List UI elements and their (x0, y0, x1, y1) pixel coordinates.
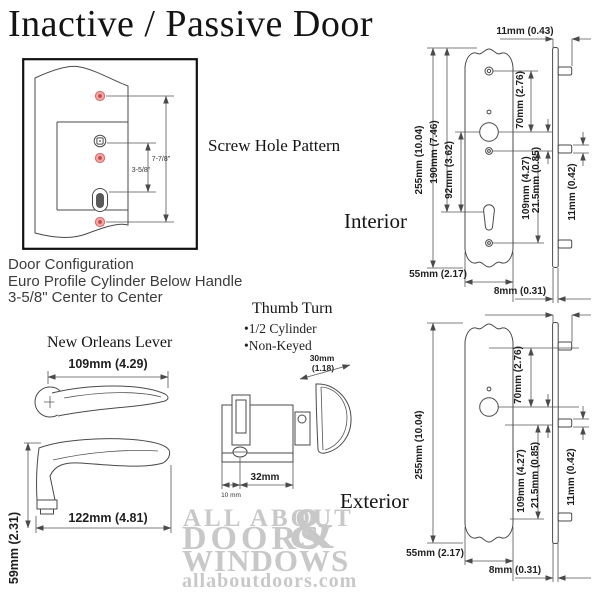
spindle-hole (94, 135, 106, 147)
exterior-dim-plate-width: 55mm (2.17) (406, 548, 464, 559)
interior-dim-total-height: 255mm (10.04) (414, 126, 425, 195)
interior-dim-screw-span: 190mm (7.46) (429, 120, 440, 183)
exterior-diagram: 255mm (10.04) 70mm (2.76) 109mm (4.27) 2… (405, 303, 600, 595)
exterior-side-profile (553, 323, 572, 544)
door-configuration-block: Door Configuration Euro Profile Cylinder… (8, 257, 242, 307)
interior-side-profile (553, 48, 572, 268)
watermark-line4: allaboutdoors.com (182, 571, 357, 591)
exterior-dim-total-height: 255mm (10.04) (414, 411, 425, 480)
exterior-dim-handle-offset: 21.5mm (0.85) (530, 442, 541, 508)
lever-dim-length: 122mm (4.81) (68, 511, 147, 525)
screw-hole-pattern-label: Screw Hole Pattern (208, 136, 340, 156)
lever-dim-width: 109mm (4.29) (68, 357, 147, 371)
exterior-dim-top-to-handle: 70mm (2.76) (513, 346, 524, 404)
interior-label: Interior (344, 209, 407, 234)
exterior-dim-side-width: 8mm (0.31) (489, 565, 541, 576)
door-edge-drawing (35, 66, 128, 237)
thumb-turn-title: Thumb Turn (252, 300, 332, 318)
pattern-dim-outer: 7-7/8" (152, 156, 171, 163)
cylinder-body (222, 395, 293, 462)
door-config-line2: Euro Profile Cylinder Below Handle (8, 274, 242, 291)
interior-dim-top-to-handle: 70mm (2.76) (515, 71, 526, 129)
thumb-turn-diagram: 30mm (1.18) 32mm 10 mm (210, 350, 360, 500)
door-config-line3: 3-5/8" Center to Center (8, 290, 242, 307)
exterior-left-dims (427, 323, 463, 543)
interior-dim-side-width: 8mm (0.31) (494, 286, 546, 297)
lever-diagram: 109mm (4.29) 122mm (4.81) 59mm (2.31) (8, 352, 208, 600)
interior-diagram: 11mm (0.43) (405, 20, 600, 310)
thumb-turn-bullet1: •1/2 Cylinder (244, 320, 317, 337)
page-title: Inactive / Passive Door (8, 2, 373, 46)
interior-dim-tab: 11mm (0.42) (567, 163, 578, 220)
interior-dim-handle-offset: 21.5mm (0.85) (531, 147, 542, 213)
interior-plate (465, 49, 513, 267)
thumb-dim-wing-line2: (1.18) (312, 363, 334, 373)
lever-title: New Orleans Lever (47, 334, 172, 352)
interior-dim-handle-to-cyl: 92mm (3.62) (444, 141, 455, 199)
euro-cylinder-hole (93, 189, 108, 212)
door-config-line1: Door Configuration (8, 257, 242, 274)
screw-hole-pattern-diagram: 7-7/8" 3-5/8" (22, 58, 198, 250)
exterior-dim-handle-to-bottom: 109mm (4.27) (516, 449, 527, 512)
interior-dim-top-width: 11mm (0.43) (496, 26, 553, 37)
lever-top-view (35, 386, 168, 417)
exterior-dim-tab: 11mm (0.42) (566, 448, 577, 505)
exterior-plate (465, 324, 513, 542)
lever-dim-height: 59mm (2.31) (7, 512, 21, 584)
thumb-dim-wing-line1: 30mm (310, 353, 335, 363)
thumb-turn-bullets: •1/2 Cylinder •Non-Keyed (244, 320, 317, 354)
page: Inactive / Passive Door (0, 0, 600, 600)
thumb-dim-offset: 10 mm (221, 492, 241, 499)
interior-top-dim (500, 39, 591, 66)
lever-top-dim-lines (48, 371, 168, 388)
lever-side-view (37, 439, 170, 514)
pattern-dim-inner: 3-5/8" (132, 167, 151, 174)
thumb-dim-body: 32mm (251, 472, 280, 483)
interior-dim-plate-width: 55mm (2.17) (409, 269, 467, 280)
thumb-turn-wing (295, 384, 351, 453)
